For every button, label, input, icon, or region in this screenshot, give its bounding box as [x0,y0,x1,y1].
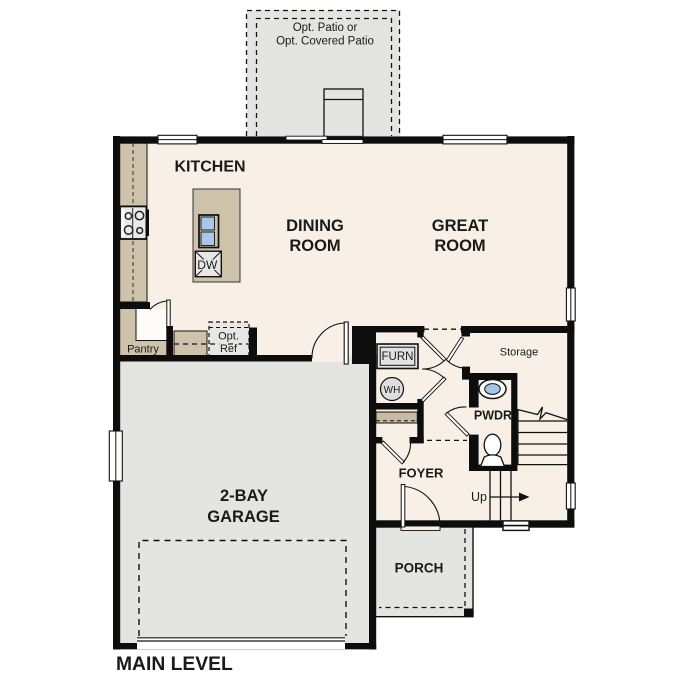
svg-text:GREAT: GREAT [432,217,489,235]
svg-text:KITCHEN: KITCHEN [174,159,245,176]
svg-text:2-BAY: 2-BAY [220,487,268,505]
svg-text:Opt. Covered Patio: Opt. Covered Patio [276,36,374,48]
svg-text:WH: WH [384,385,401,396]
svg-text:MAIN LEVEL: MAIN LEVEL [116,654,233,675]
svg-text:FOYER: FOYER [399,466,444,481]
svg-text:Opt.: Opt. [218,331,239,343]
svg-text:FURN: FURN [382,351,414,363]
svg-text:ROOM: ROOM [434,237,485,255]
svg-text:GARAGE: GARAGE [207,508,279,526]
svg-text:Pantry: Pantry [127,344,159,356]
svg-text:ROOM: ROOM [289,237,340,255]
svg-text:DW: DW [197,258,218,272]
svg-text:DINING: DINING [286,217,344,235]
svg-text:PWDR: PWDR [474,409,512,423]
svg-text:Opt. Patio or: Opt. Patio or [293,22,358,34]
svg-text:PORCH: PORCH [395,561,444,576]
svg-text:Up: Up [471,490,487,504]
svg-text:Ref: Ref [220,343,238,355]
svg-text:Storage: Storage [500,347,539,359]
